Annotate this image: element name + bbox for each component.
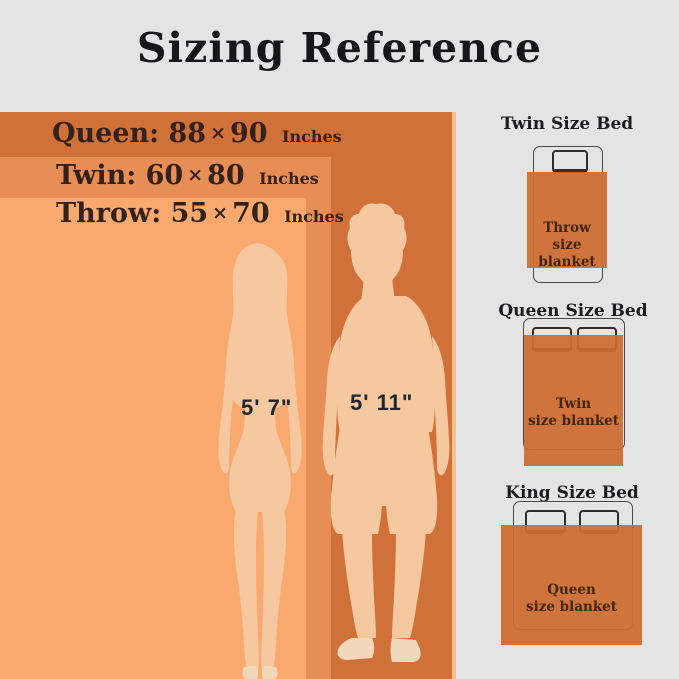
blanket-label-line1: Queen [526, 582, 617, 599]
queen-size-height: 90 [230, 118, 268, 149]
queen-size-unit: Inches [282, 127, 342, 146]
page-title: Sizing Reference [0, 24, 679, 72]
blanket-label-line1: Twin [528, 396, 619, 413]
throw-size-name: Throw: [56, 198, 161, 229]
pillow-icon [552, 150, 588, 173]
times-symbol: × [187, 164, 203, 186]
queen-size-name: Queen: [52, 118, 159, 149]
twin-size-label: Twin: 60×80 Inches [56, 160, 319, 191]
times-symbol: × [212, 202, 228, 224]
king-bed-title: King Size Bed [472, 483, 672, 503]
queen-size-width: 88 [169, 118, 207, 149]
throw-size-label: Throw: 55×70 Inches [56, 198, 344, 229]
queen-blanket-overlay: Queen size blanket [501, 525, 642, 645]
blanket-label-line1: Throw [527, 220, 607, 237]
times-symbol: × [210, 122, 226, 144]
blanket-label: Twin size blanket [528, 396, 619, 430]
blanket-label-line2: size blanket [526, 599, 617, 616]
throw-size-width: 55 [171, 198, 209, 229]
woman-silhouette-icon [198, 240, 316, 679]
throw-blanket-overlay: Throw size blanket [527, 172, 607, 268]
sizing-reference-infographic: Sizing Reference Queen: 88×90 Inches Twi… [0, 0, 679, 679]
twin-blanket-overlay: Twin size blanket [524, 335, 623, 466]
queen-size-label: Queen: 88×90 Inches [52, 118, 342, 149]
man-silhouette-icon [318, 200, 454, 665]
twin-size-height: 80 [207, 160, 245, 191]
man-height-label: 5' 11" [350, 390, 413, 416]
throw-size-height: 70 [232, 198, 270, 229]
woman-height-label: 5' 7" [241, 395, 292, 421]
twin-size-name: Twin: [56, 160, 136, 191]
blanket-label-line2: size blanket [528, 413, 619, 430]
blanket-label: Throw size blanket [527, 220, 607, 271]
twin-bed-title: Twin Size Bed [467, 114, 667, 134]
blanket-label-line2: size blanket [527, 237, 607, 271]
twin-size-width: 60 [146, 160, 184, 191]
twin-size-unit: Inches [259, 169, 319, 188]
blanket-label: Queen size blanket [526, 582, 617, 616]
